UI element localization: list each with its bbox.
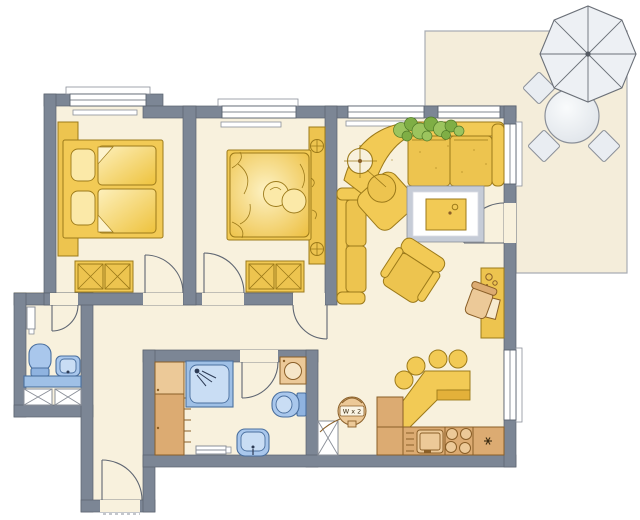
- pillow: [71, 191, 95, 225]
- round-pillow: [282, 189, 306, 213]
- tall-cupboard: [318, 421, 338, 455]
- toilet: [272, 392, 306, 417]
- stool: [407, 357, 425, 375]
- freezer-cabinet: [473, 427, 504, 455]
- stool: [449, 350, 467, 368]
- floor-plan: W x 2: [0, 0, 640, 520]
- bedroom1-window: [66, 87, 150, 115]
- stool: [395, 371, 413, 389]
- radiator: [196, 446, 231, 454]
- washing-machine: [280, 357, 306, 384]
- stove: [445, 427, 473, 455]
- living-east-window: [504, 122, 522, 186]
- corner-cabinet: [377, 397, 403, 427]
- double-bed: [227, 150, 311, 240]
- washbasin: [237, 429, 269, 456]
- corner-cabinet: [377, 427, 403, 455]
- wardrobe: [75, 261, 133, 292]
- shower: [186, 361, 233, 407]
- washbasin: [56, 356, 80, 376]
- toilet: [29, 344, 51, 376]
- pillow: [71, 149, 95, 181]
- wardrobe: [246, 261, 304, 292]
- living-window-right: [438, 106, 500, 118]
- coffee-table: [426, 199, 466, 230]
- under-counter-cabinets: [24, 389, 81, 405]
- stool: [429, 350, 447, 368]
- vanity-counter: [24, 376, 81, 387]
- double-bed: [63, 140, 163, 238]
- parasol-icon: [540, 6, 636, 102]
- boiler-label: W x 2: [343, 408, 362, 416]
- sink-unit: [403, 427, 445, 455]
- kitchen-window: [504, 348, 522, 422]
